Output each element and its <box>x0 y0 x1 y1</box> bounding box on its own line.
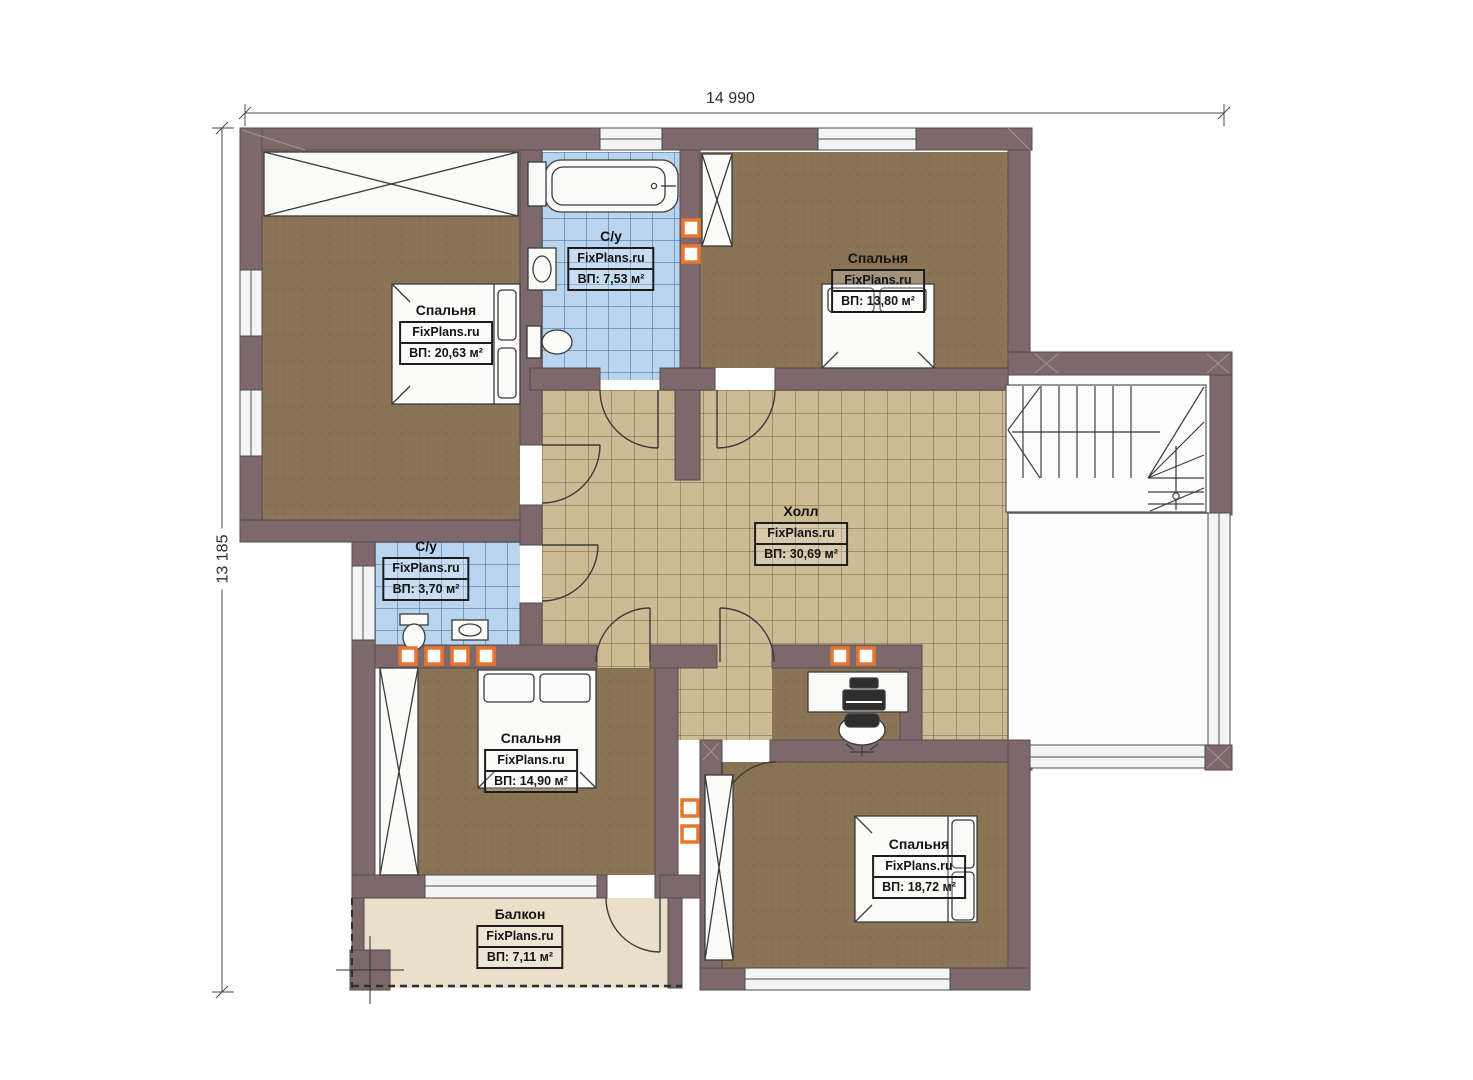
room-area: ВП: 3,70 м² <box>384 578 467 599</box>
room-area: ВП: 14,90 м² <box>486 770 576 791</box>
bathtub <box>545 160 678 212</box>
room-label-balcony: Балкон FixPlans.ru ВП: 7,11 м² <box>476 906 563 969</box>
brand-watermark: FixPlans.ru <box>874 857 964 876</box>
balcony-pillar-axis <box>336 936 404 1004</box>
room-label-bedroom-bottom-mid: Спальня FixPlans.ru ВП: 14,90 м² <box>484 730 578 793</box>
room-info-box: FixPlans.ru ВП: 7,53 м² <box>567 247 654 291</box>
room-label-bedroom-master: Спальня FixPlans.ru ВП: 20,63 м² <box>399 302 493 365</box>
wardrobe-top-right <box>702 154 732 246</box>
brand-watermark: FixPlans.ru <box>756 524 846 543</box>
room-name: Спальня <box>399 302 493 318</box>
room-label-bedroom-bottom-right: Спальня FixPlans.ru ВП: 18,72 м² <box>872 836 966 899</box>
room-label-hall: Холл FixPlans.ru ВП: 30,69 м² <box>754 503 848 566</box>
room-info-box: FixPlans.ru ВП: 7,11 м² <box>476 925 563 969</box>
room-area: ВП: 20,63 м² <box>401 342 491 363</box>
brand-watermark: FixPlans.ru <box>486 751 576 770</box>
room-name: Спальня <box>831 250 925 266</box>
room-info-box: FixPlans.ru ВП: 18,72 м² <box>872 855 966 899</box>
room-name: Спальня <box>484 730 578 746</box>
brand-watermark: FixPlans.ru <box>401 323 491 342</box>
room-area: ВП: 7,53 м² <box>569 268 652 289</box>
room-name: Холл <box>754 503 848 519</box>
dimension-width-label: 14 990 <box>700 90 761 108</box>
room-label-bathroom-small: С/у FixPlans.ru ВП: 3,70 м² <box>382 538 469 601</box>
toilet-top <box>527 326 572 358</box>
wardrobe-bottom-mid <box>380 668 418 875</box>
room-area: ВП: 13,80 м² <box>833 290 923 311</box>
wardrobe-bottom-right <box>705 775 733 960</box>
room-area: ВП: 30,69 м² <box>756 543 846 564</box>
room-info-box: FixPlans.ru ВП: 14,90 м² <box>484 749 578 793</box>
room-info-box: FixPlans.ru ВП: 3,70 м² <box>382 557 469 601</box>
brand-watermark: FixPlans.ru <box>569 249 652 268</box>
room-name: С/у <box>382 538 469 554</box>
room-info-box: FixPlans.ru ВП: 30,69 м² <box>754 522 848 566</box>
wardrobe-master <box>264 152 518 216</box>
brand-watermark: FixPlans.ru <box>833 271 923 290</box>
floor-plan-canvas: 14 990 13 185 Спальня FixPlans.ru ВП: 20… <box>0 0 1473 1080</box>
washbasin-small <box>452 620 488 640</box>
room-area: ВП: 7,11 м² <box>478 946 561 967</box>
dimension-height-label: 13 185 <box>214 529 232 590</box>
room-info-box: FixPlans.ru ВП: 20,63 м² <box>399 321 493 365</box>
room-info-box: FixPlans.ru ВП: 13,80 м² <box>831 269 925 313</box>
room-label-bathroom-top: С/у FixPlans.ru ВП: 7,53 м² <box>567 228 654 291</box>
brand-watermark: FixPlans.ru <box>478 927 561 946</box>
bath-shelf <box>528 162 546 206</box>
room-label-bedroom-top-right: Спальня FixPlans.ru ВП: 13,80 м² <box>831 250 925 313</box>
brand-watermark: FixPlans.ru <box>384 559 467 578</box>
staircase <box>1006 385 1206 512</box>
room-name: С/у <box>567 228 654 244</box>
room-name: Спальня <box>872 836 966 852</box>
room-area: ВП: 18,72 м² <box>874 876 964 897</box>
room-name: Балкон <box>476 906 563 922</box>
washbasin-top <box>528 248 556 290</box>
